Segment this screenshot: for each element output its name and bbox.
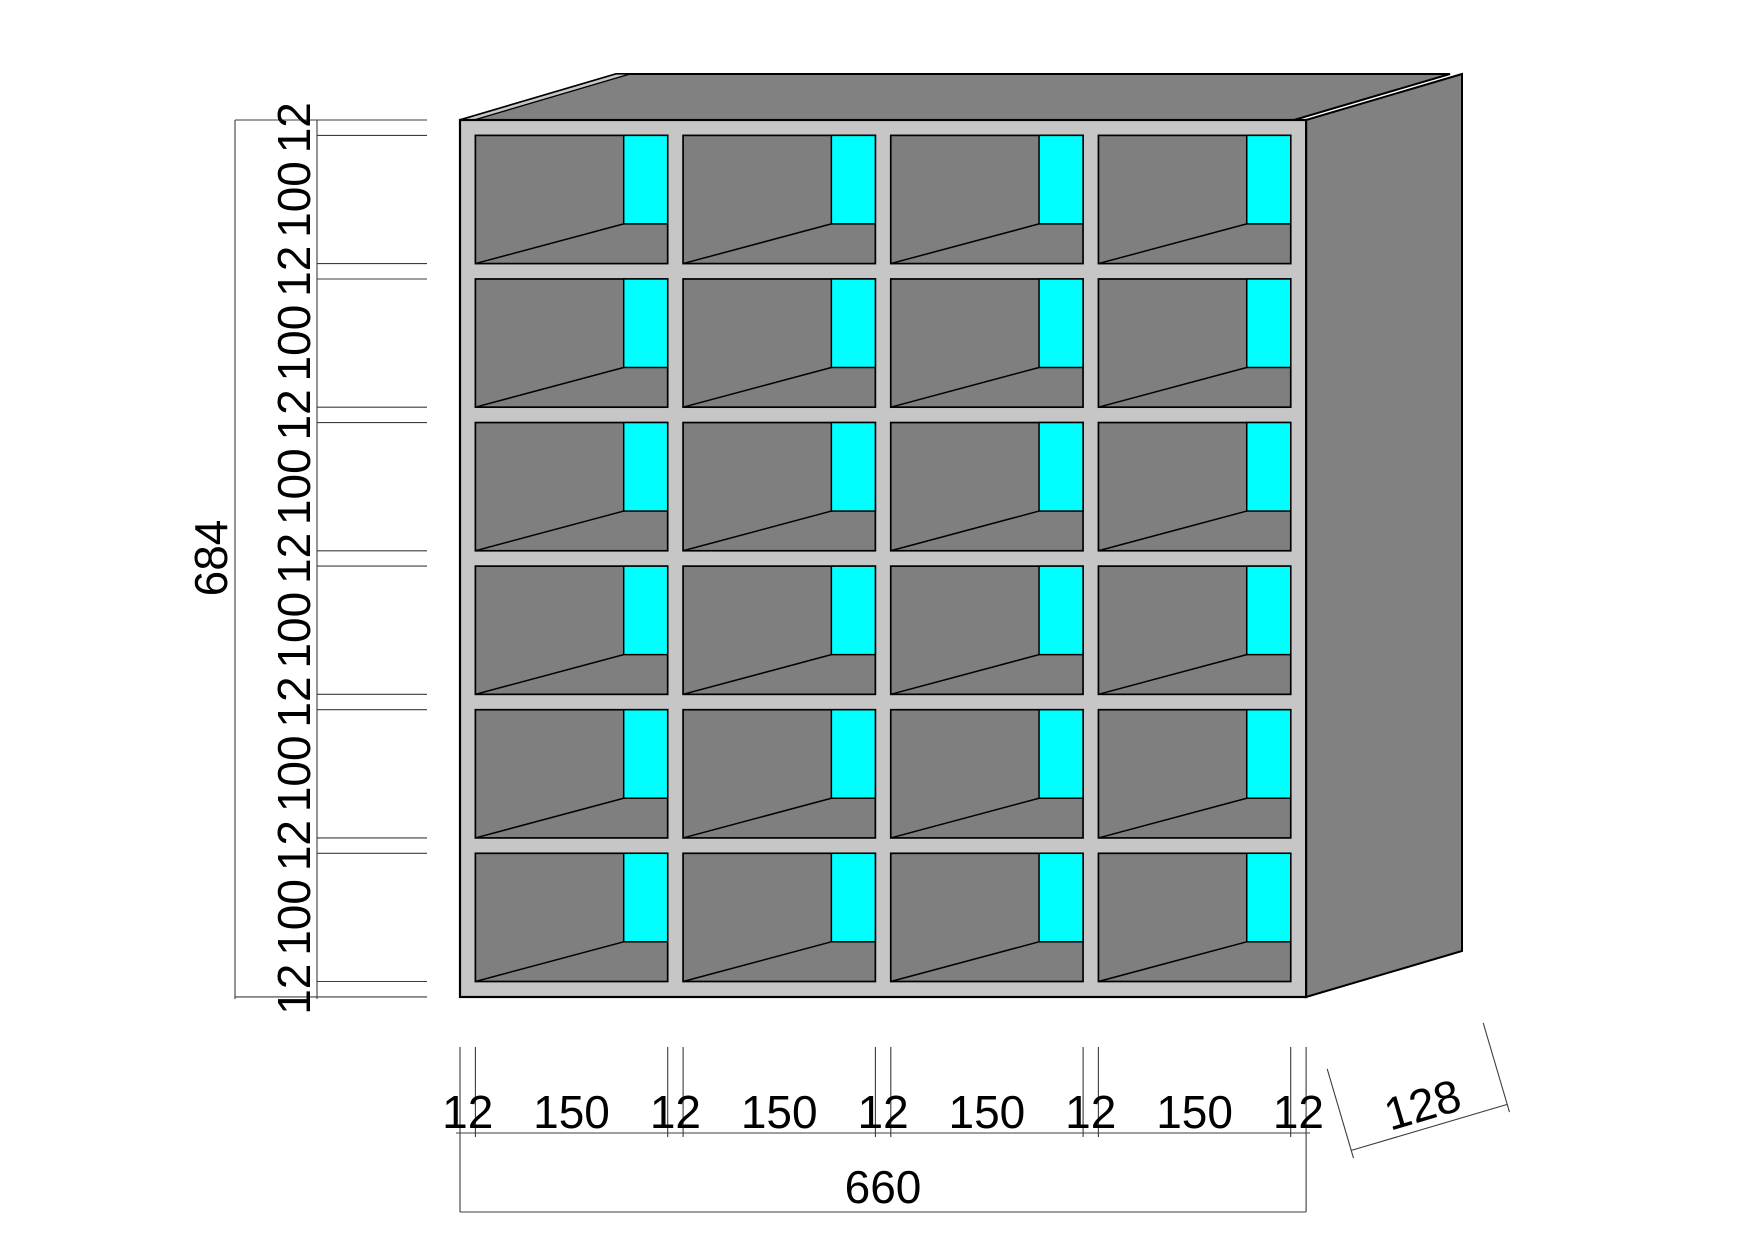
depth-extension-line-back (1483, 1023, 1509, 1112)
height-dim-label: 12 (268, 964, 320, 1015)
compartment (891, 135, 1083, 263)
compartment-back-highlight (624, 566, 668, 655)
compartment-back-highlight (624, 135, 668, 224)
compartment (683, 710, 875, 838)
compartment (891, 566, 1083, 694)
width-dim-label: 12 (650, 1086, 701, 1138)
width-dim-label: 12 (1065, 1086, 1116, 1138)
compartment-back-highlight (624, 853, 668, 942)
compartment-back-highlight (831, 710, 875, 799)
compartment-back-highlight (1247, 279, 1291, 368)
compartment-back-highlight (624, 279, 668, 368)
height-dim-label: 12 (268, 820, 320, 871)
compartment (475, 853, 667, 981)
height-dimension-chain: 12100121001210012100121001210012 (235, 102, 427, 1015)
compartment (475, 423, 667, 551)
compartment-back-highlight (1039, 423, 1083, 512)
compartment (475, 710, 667, 838)
compartment-back-highlight (1247, 853, 1291, 942)
compartment-back-highlight (831, 423, 875, 512)
compartment (891, 423, 1083, 551)
compartment-back-highlight (831, 853, 875, 942)
width-dim-label: 12 (442, 1086, 493, 1138)
height-dim-label: 12 (268, 676, 320, 727)
height-dim-label: 100 (268, 448, 320, 525)
height-dim-label: 100 (268, 305, 320, 382)
compartment (1098, 853, 1290, 981)
compartment-back-highlight (1039, 710, 1083, 799)
width-dim-label: 12 (858, 1086, 909, 1138)
compartment (891, 710, 1083, 838)
compartment (1098, 135, 1290, 263)
width-dim-label: 12 (1273, 1086, 1324, 1138)
depth-extension-line-front (1327, 1069, 1353, 1158)
height-dim-label: 100 (268, 879, 320, 956)
compartment-back-highlight (1247, 710, 1291, 799)
compartment-back-highlight (624, 710, 668, 799)
compartment (1098, 710, 1290, 838)
compartment-back-highlight (1247, 566, 1291, 655)
compartment (891, 853, 1083, 981)
width-total-label: 660 (845, 1161, 922, 1213)
height-dim-label: 12 (268, 389, 320, 440)
height-dim-label: 12 (268, 533, 320, 584)
width-dim-label: 150 (533, 1086, 610, 1138)
compartment-back-highlight (1247, 135, 1291, 224)
compartment (683, 135, 875, 263)
compartment-back-highlight (831, 135, 875, 224)
compartment (475, 135, 667, 263)
compartment-back-highlight (831, 566, 875, 655)
height-dim-label: 100 (268, 161, 320, 238)
compartment-back-highlight (831, 279, 875, 368)
compartment (683, 853, 875, 981)
compartment (891, 279, 1083, 407)
compartment-back-highlight (1039, 853, 1083, 942)
height-dim-label: 100 (268, 592, 320, 669)
compartment-back-highlight (1039, 566, 1083, 655)
compartment-back-highlight (624, 423, 668, 512)
compartment (475, 279, 667, 407)
height-total-label: 684 (185, 520, 237, 597)
height-dim-label: 12 (268, 102, 320, 153)
compartment-back-highlight (1039, 135, 1083, 224)
width-dim-label: 150 (1156, 1086, 1233, 1138)
cabinet (460, 74, 1462, 997)
compartment (1098, 279, 1290, 407)
compartment (1098, 566, 1290, 694)
cad-drawing: 12100121001210012100121001210012 1215012… (0, 0, 1755, 1241)
compartment (683, 566, 875, 694)
compartment (1098, 423, 1290, 551)
compartment-back-highlight (1247, 423, 1291, 512)
cabinet-right-side-panel (1306, 74, 1462, 997)
height-dim-label: 100 (268, 735, 320, 812)
height-dim-label: 12 (268, 246, 320, 297)
width-dim-label: 150 (949, 1086, 1026, 1138)
drawing-canvas: 12100121001210012100121001210012 1215012… (0, 0, 1755, 1241)
compartment (475, 566, 667, 694)
width-dim-label: 150 (741, 1086, 818, 1138)
compartment (683, 423, 875, 551)
compartment (683, 279, 875, 407)
depth-dim-label: 128 (1378, 1069, 1466, 1141)
compartment-back-highlight (1039, 279, 1083, 368)
